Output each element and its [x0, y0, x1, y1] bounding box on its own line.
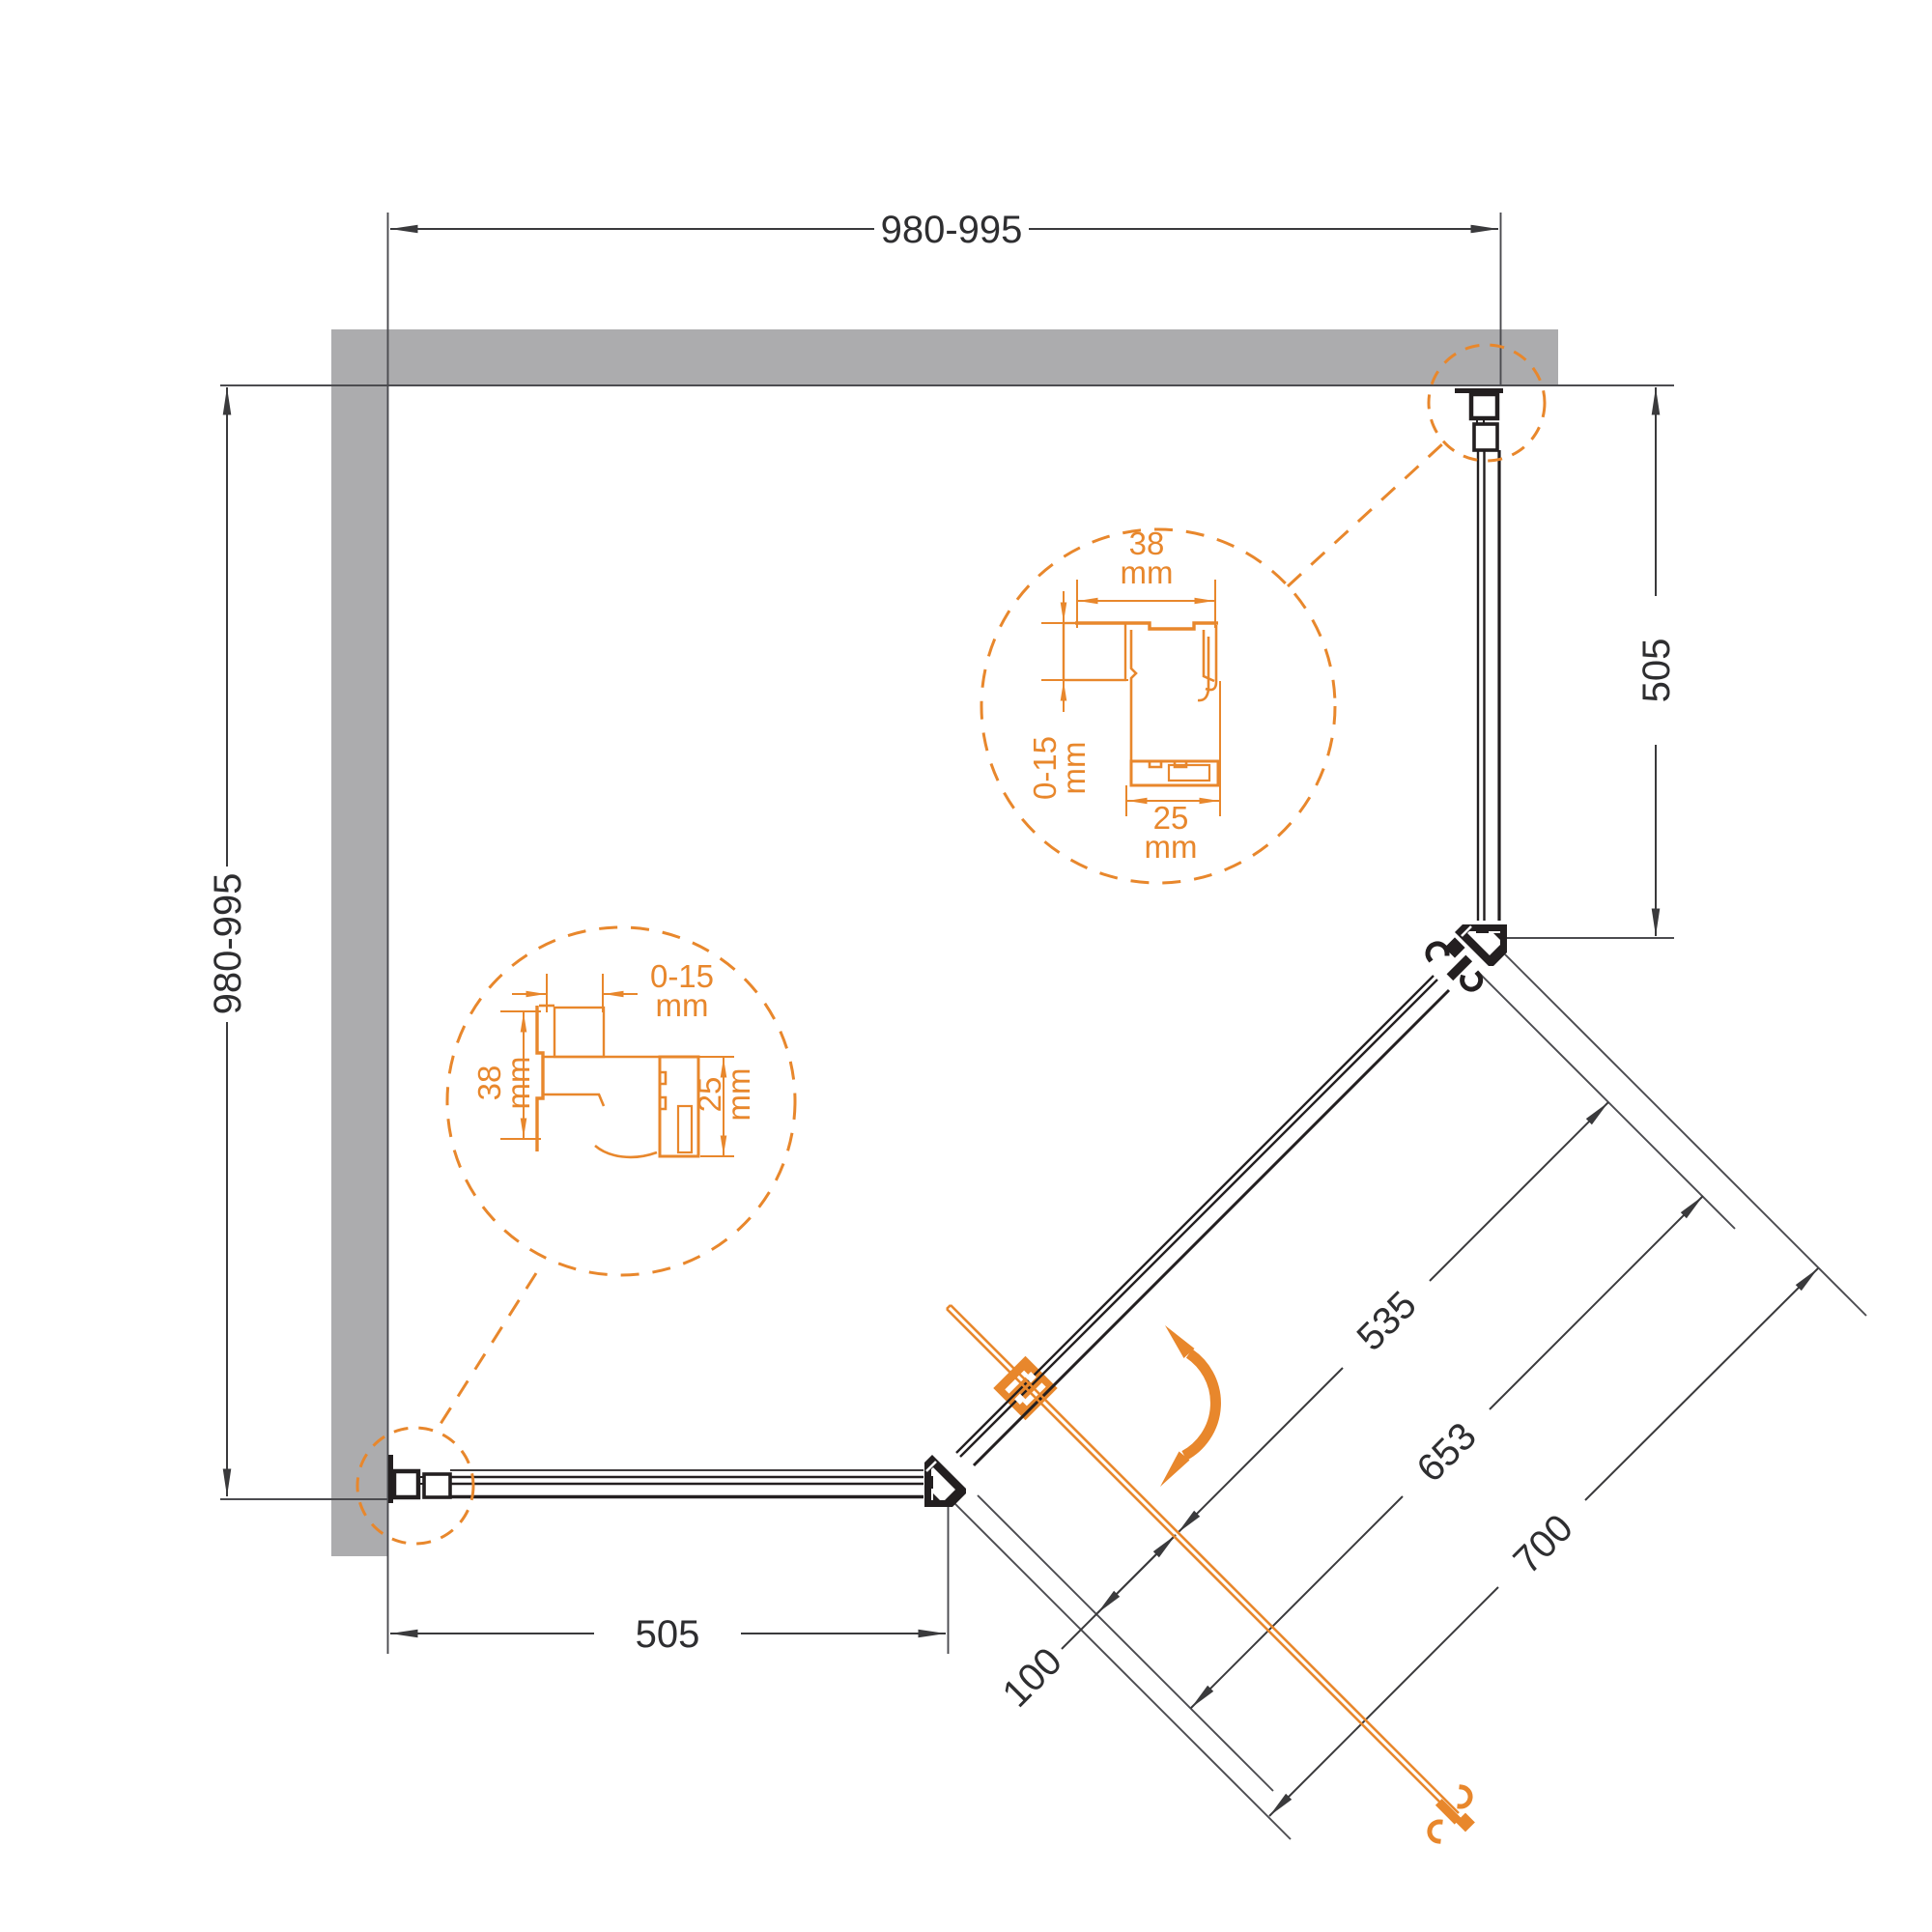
svg-text:980-995: 980-995 [207, 873, 249, 1015]
svg-text:mm: mm [1145, 829, 1198, 865]
svg-text:505: 505 [636, 1613, 700, 1656]
svg-text:mm: mm [721, 1068, 756, 1122]
svg-text:mm: mm [656, 987, 709, 1023]
svg-text:980-995: 980-995 [881, 209, 1023, 251]
svg-text:mm: mm [1121, 554, 1174, 590]
svg-text:505: 505 [1635, 639, 1678, 703]
svg-text:mm: mm [500, 1057, 536, 1110]
svg-text:mm: mm [1056, 742, 1092, 795]
